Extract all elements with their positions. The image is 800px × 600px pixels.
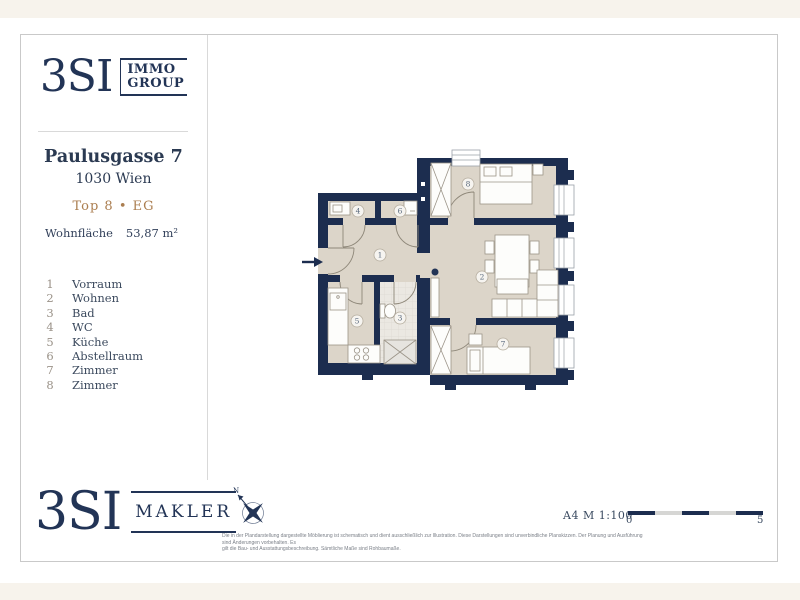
brand-sub-box: IMMO GROUP [120,58,187,95]
scale-format-label: A4 M 1:100 [563,509,633,522]
room-number-4: 4 [356,207,361,216]
logo-divider [38,131,188,132]
living-area-value: 53,87 m² [126,226,178,240]
city: 1030 Wien [20,171,207,187]
floor-plan: 1 2 3 4 5 6 7 8 [300,140,600,400]
legend-num: 7 [45,363,55,377]
disclaimer-line1: Die in der Plandarstellung dargestellte … [222,533,646,546]
legend-label: Wohnen [72,291,119,305]
legend-row: 3 Bad [45,306,143,320]
disclaimer-line2: gilt die Bau- und Ausstattungsbeschreibu… [222,546,646,553]
scale-start-label: 0 [626,515,632,526]
legend-label: Zimmer [72,378,118,392]
plant [432,269,439,276]
legend-label: WC [72,320,93,334]
kitchen-stove [348,345,380,363]
legend-row: 4 WC [45,320,143,334]
immo-group-logo: 3SI IMMO GROUP [20,56,207,98]
legend-num: 8 [45,378,55,392]
scale-end-label: 5 [757,515,763,526]
legend-row: 7 Zimmer [45,363,143,377]
room-number-6: 6 [398,207,403,216]
wc-sink [330,202,350,215]
top-margin-band [0,0,800,18]
legend-num: 1 [45,277,55,291]
room-number-2: 2 [480,273,485,282]
room-number-7: 7 [501,340,506,349]
room-number-8: 8 [466,180,471,189]
room-number-1: 1 [378,251,383,260]
living-area-label: Wohnfläche [45,226,113,240]
makler-logo: 3SI MAKLER [35,486,236,538]
legend-row: 2 Wohnen [45,291,143,305]
brand-sub-line2: GROUP [127,77,184,91]
legend-label: Bad [72,306,95,320]
scale-bar [628,511,763,515]
window-room7 [554,338,574,368]
legend-num: 4 [45,320,55,334]
street-address: Paulusgasse 7 [20,147,207,167]
shower [384,340,416,364]
legend-row: 8 Zimmer [45,378,143,392]
makler-brand-name: 3SI [35,486,121,538]
legend-label: Vorraum [72,277,122,291]
legend-row: 5 Küche [45,335,143,349]
brand-name: 3SI [40,56,113,98]
legend-row: 1 Vorraum [45,277,143,291]
room-legend: 1 Vorraum 2 Wohnen 3 Bad 4 WC 5 Küche 6 … [45,277,143,392]
brand-sub-line1: IMMO [127,63,184,77]
unit-label: Top 8 • EG [20,199,207,214]
room-number-3: 3 [398,314,403,323]
makler-sub-box: MAKLER [131,491,236,533]
bottom-margin-band [0,583,800,600]
legend-num: 3 [45,306,55,320]
window-living-upper [554,238,574,268]
legend-row: 6 Abstellraum [45,349,143,363]
column-divider [207,35,208,480]
toilet [380,304,396,318]
wardrobe-room8 [431,163,451,216]
wardrobe-room7 [431,326,451,374]
scale-segment [682,511,709,515]
scale-segment [709,511,736,515]
legend-num: 6 [45,349,55,363]
legend-label: Küche [72,335,108,349]
disclaimer-text: Die in der Plandarstellung dargestellte … [222,533,646,553]
compass-north-label: N [233,487,239,495]
room-number-5: 5 [355,317,360,326]
makler-sub: MAKLER [135,502,232,522]
coffee-table [497,279,528,294]
legend-label: Zimmer [72,363,118,377]
window-room8 [554,185,574,215]
scale-segment [655,511,682,515]
living-area-row: Wohnfläche 53,87 m² [45,226,178,240]
window-top [452,150,480,166]
legend-label: Abstellraum [72,349,143,363]
legend-num: 2 [45,291,55,305]
legend-num: 5 [45,335,55,349]
kitchen-counter [328,288,348,345]
compass-rose: N [231,485,275,535]
